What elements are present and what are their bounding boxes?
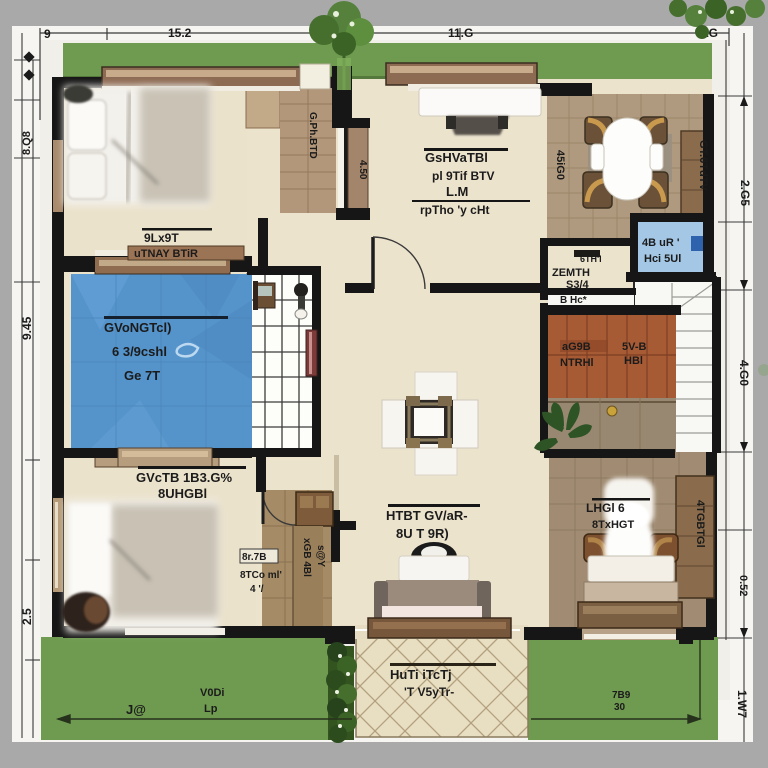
svg-text:uTNAY BTiR: uTNAY BTiR: [134, 248, 198, 260]
svg-text:8TCo ml': 8TCo ml': [240, 570, 282, 581]
svg-text:8TxHGT: 8TxHGT: [592, 519, 634, 531]
svg-text:4B uR ': 4B uR ': [642, 237, 680, 249]
svg-text:0.52: 0.52: [737, 575, 749, 596]
svg-text:V0Di: V0Di: [200, 687, 224, 699]
svg-text:GVcTB 1B3.G%: GVcTB 1B3.G%: [136, 470, 233, 485]
svg-text:HuTi iTcTj: HuTi iTcTj: [390, 667, 452, 682]
svg-text:HBl: HBl: [624, 355, 643, 367]
svg-text:15.2: 15.2: [168, 26, 192, 40]
svg-text:G.Ph.BTD: G.Ph.BTD: [307, 112, 318, 159]
svg-text:7B9: 7B9: [612, 690, 631, 701]
svg-text:6TH'l: 6TH'l: [580, 254, 602, 264]
svg-text:Ge 7T: Ge 7T: [124, 368, 160, 383]
svg-text:1.W7: 1.W7: [735, 690, 749, 718]
svg-text:2.5: 2.5: [20, 608, 34, 625]
svg-text:J@: J@: [126, 702, 146, 717]
svg-text:pl 9Tif BTV: pl 9Tif BTV: [432, 169, 494, 183]
svg-text:GVoNGTcl): GVoNGTcl): [104, 320, 171, 335]
svg-text:NTRHl: NTRHl: [560, 357, 594, 369]
svg-text:2.G5: 2.G5: [738, 180, 752, 206]
svg-text:'T V5yTr-: 'T V5yTr-: [404, 685, 454, 699]
svg-text:HTBT GV/aR-: HTBT GV/aR-: [386, 508, 468, 523]
svg-text:9: 9: [44, 27, 51, 41]
svg-text:11.G: 11.G: [448, 26, 473, 40]
svg-text:rpTho 'y cHt: rpTho 'y cHt: [420, 203, 490, 217]
svg-text:9.45: 9.45: [20, 316, 34, 340]
svg-text:B Hc*: B Hc*: [560, 295, 587, 306]
svg-text:9Lx9T: 9Lx9T: [144, 231, 179, 245]
svg-text:GsHVaTBl: GsHVaTBl: [425, 150, 488, 165]
svg-text:8.Q8: 8.Q8: [21, 131, 33, 155]
svg-text:8r.7B: 8r.7B: [242, 552, 266, 563]
svg-text:aG9B: aG9B: [562, 341, 591, 353]
svg-text:6 3/9cshl: 6 3/9cshl: [112, 344, 167, 359]
svg-text:45iG0: 45iG0: [554, 150, 566, 180]
svg-text:4 '/: 4 '/: [250, 584, 264, 595]
svg-text:8U T 9R): 8U T 9R): [396, 526, 449, 541]
svg-text:GT.6TdTV: GT.6TdTV: [697, 140, 709, 191]
svg-text:Lp: Lp: [204, 703, 218, 715]
svg-text:s@Y: s@Y: [315, 545, 326, 567]
svg-text:xGB 4Bl: xGB 4Bl: [301, 538, 312, 577]
svg-text:4.50: 4.50: [357, 160, 368, 180]
svg-text:LHGl 6: LHGl 6: [586, 501, 625, 515]
svg-text:S3/4: S3/4: [566, 279, 590, 291]
svg-text:4TGBTGl: 4TGBTGl: [694, 500, 706, 548]
svg-text:ZEMTH: ZEMTH: [552, 267, 590, 279]
svg-text:L.M: L.M: [446, 184, 468, 199]
svg-text:5V-B: 5V-B: [622, 341, 647, 353]
svg-text:8UHGBl: 8UHGBl: [158, 486, 207, 501]
svg-text:30: 30: [614, 702, 626, 713]
svg-text:4.G0: 4.G0: [737, 360, 751, 386]
svg-text:Hci 5Ul: Hci 5Ul: [644, 253, 681, 265]
